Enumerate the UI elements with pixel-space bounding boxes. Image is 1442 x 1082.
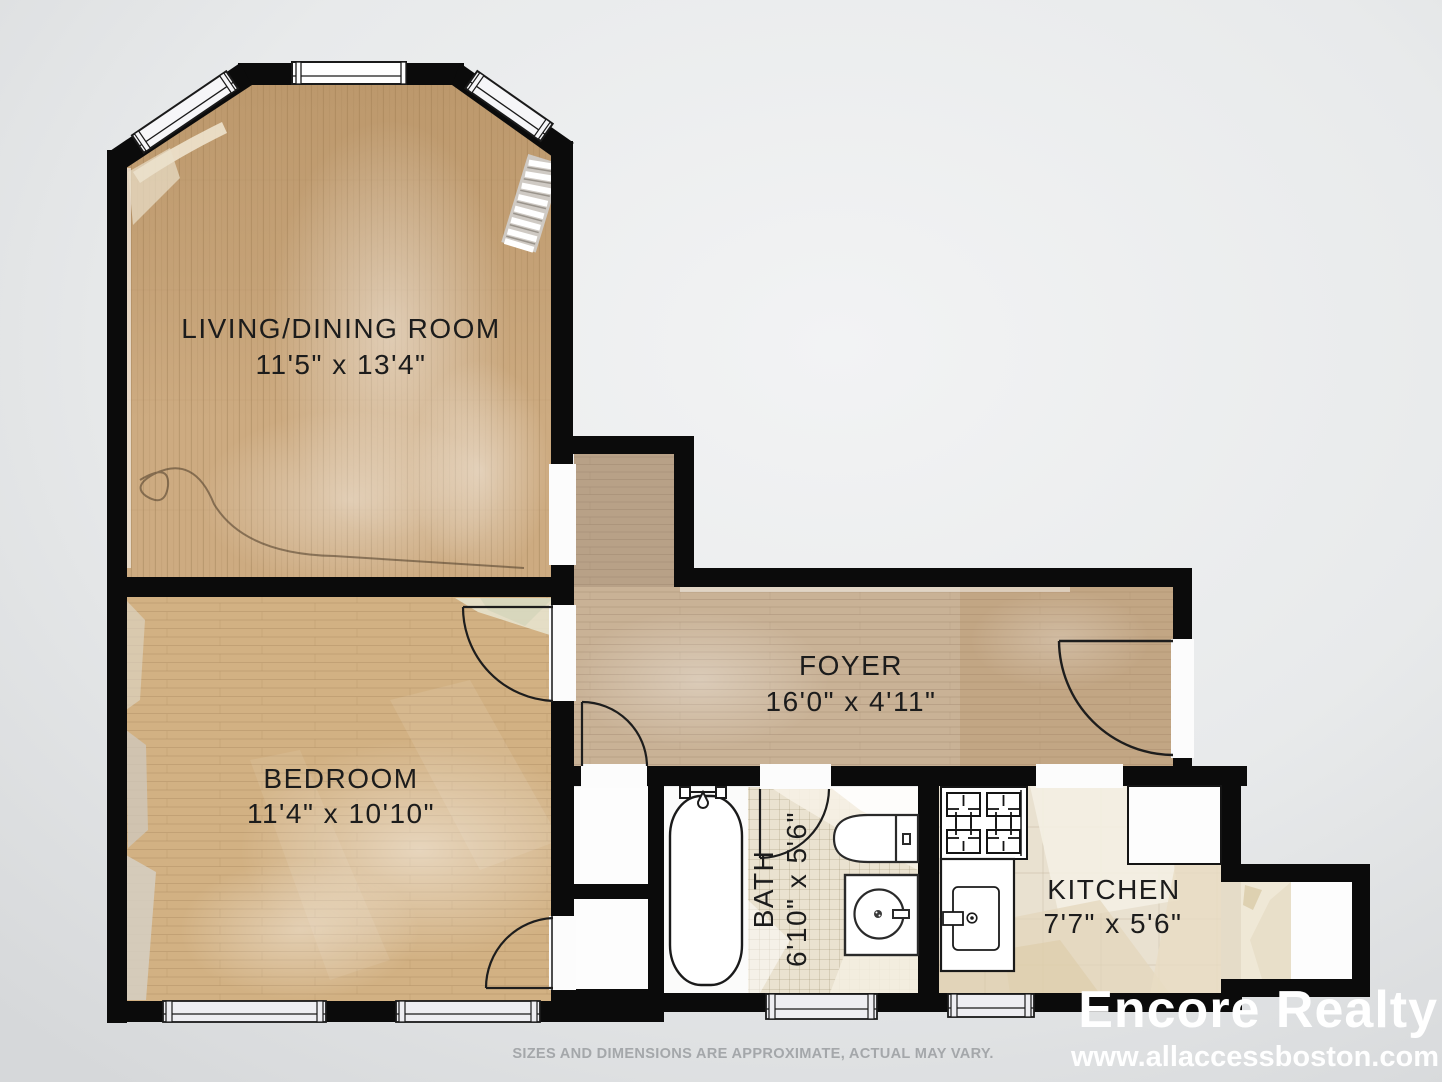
svg-text:BEDROOM: BEDROOM bbox=[263, 763, 418, 794]
svg-text:11'4" x 10'10": 11'4" x 10'10" bbox=[247, 798, 435, 829]
svg-text:BATH: BATH bbox=[748, 850, 779, 929]
svg-text:11'5" x 13'4": 11'5" x 13'4" bbox=[256, 349, 427, 380]
svg-text:Encore Realty: Encore Realty bbox=[1078, 981, 1438, 1039]
svg-text:KITCHEN: KITCHEN bbox=[1047, 874, 1180, 905]
svg-text:www.allaccessboston.com: www.allaccessboston.com bbox=[1070, 1041, 1439, 1073]
svg-text:FOYER: FOYER bbox=[799, 650, 903, 681]
svg-text:SIZES AND DIMENSIONS ARE APPRO: SIZES AND DIMENSIONS ARE APPROXIMATE, AC… bbox=[512, 1046, 993, 1062]
svg-text:LIVING/DINING ROOM: LIVING/DINING ROOM bbox=[181, 313, 500, 344]
svg-text:7'7" x 5'6": 7'7" x 5'6" bbox=[1044, 908, 1183, 939]
svg-text:6'10" x 5'6": 6'10" x 5'6" bbox=[781, 811, 812, 967]
svg-text:16'0" x 4'11": 16'0" x 4'11" bbox=[766, 686, 937, 717]
